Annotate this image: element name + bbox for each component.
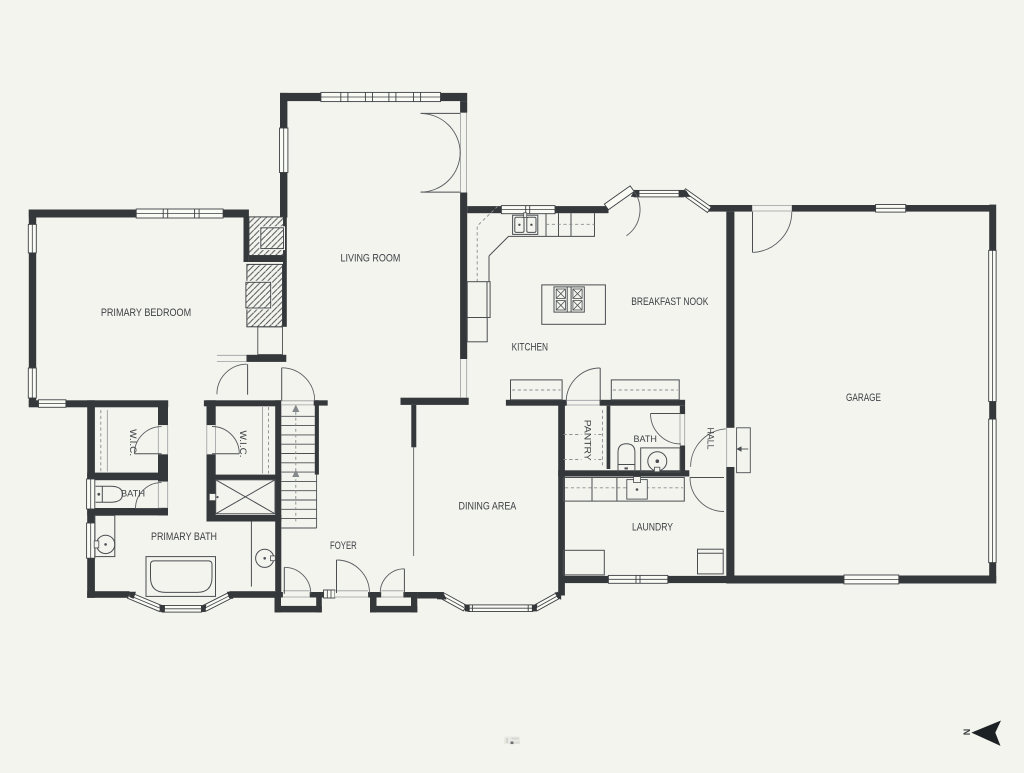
svg-text:DINING AREA: DINING AREA	[459, 501, 518, 513]
svg-text:W.I.C.: W.I.C.	[127, 429, 138, 456]
svg-text:LAUNDRY: LAUNDRY	[632, 521, 673, 533]
svg-text:BATH: BATH	[634, 434, 657, 445]
svg-text:BATH: BATH	[121, 489, 145, 500]
svg-text:W.I.C.: W.I.C.	[237, 431, 248, 458]
svg-text:LIVING ROOM: LIVING ROOM	[341, 252, 401, 264]
svg-text:PANTRY: PANTRY	[582, 420, 593, 462]
svg-text:GARAGE: GARAGE	[846, 392, 881, 404]
svg-text:FOYER: FOYER	[330, 540, 357, 552]
svg-text:BREAKFAST NOOK: BREAKFAST NOOK	[631, 296, 708, 308]
svg-text:KITCHEN: KITCHEN	[512, 342, 548, 354]
svg-text:N: N	[962, 729, 972, 736]
svg-text:PRIMARY BATH: PRIMARY BATH	[151, 531, 217, 543]
svg-text:HALL: HALL	[704, 428, 715, 451]
svg-text:PRIMARY BEDROOM: PRIMARY BEDROOM	[101, 307, 191, 319]
